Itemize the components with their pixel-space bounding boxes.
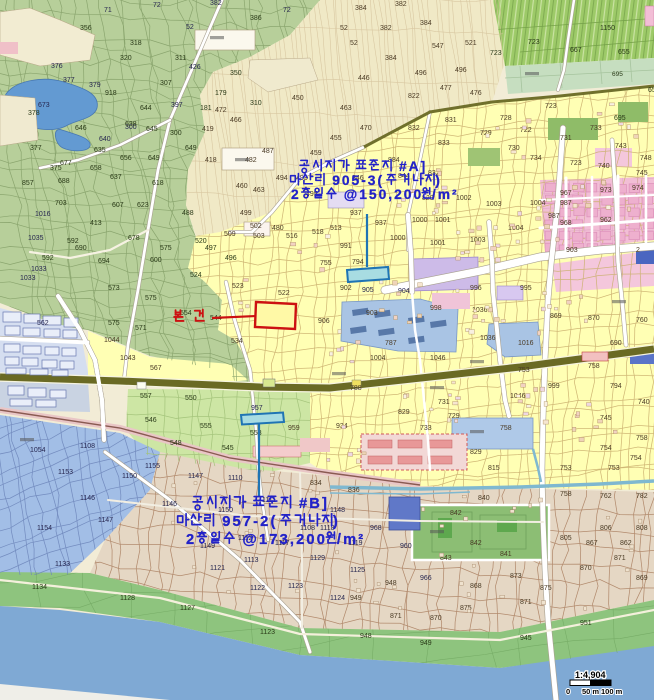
svg-text:1127: 1127 bbox=[180, 605, 195, 612]
svg-text:607: 607 bbox=[112, 202, 124, 209]
svg-text:743: 743 bbox=[615, 143, 627, 150]
svg-text:179: 179 bbox=[215, 90, 227, 97]
svg-text:496: 496 bbox=[455, 67, 467, 74]
svg-text:#A]: #A] bbox=[399, 159, 427, 174]
svg-text:1108: 1108 bbox=[300, 525, 315, 532]
svg-text:573: 573 bbox=[108, 285, 120, 292]
svg-text:949: 949 bbox=[420, 640, 432, 647]
svg-text:656: 656 bbox=[120, 155, 132, 162]
svg-text:733: 733 bbox=[420, 425, 432, 432]
svg-text:999: 999 bbox=[548, 383, 560, 390]
svg-text:307: 307 bbox=[160, 80, 172, 87]
svg-text:957-2(: 957-2( bbox=[222, 514, 277, 530]
svg-text:545: 545 bbox=[222, 445, 234, 452]
svg-text:758: 758 bbox=[588, 363, 600, 370]
svg-text:966: 966 bbox=[420, 575, 432, 582]
svg-text:548: 548 bbox=[170, 440, 182, 447]
svg-text:998: 998 bbox=[430, 305, 442, 312]
svg-text:310: 310 bbox=[250, 100, 262, 107]
svg-text:1001: 1001 bbox=[435, 217, 451, 224]
svg-text:494: 494 bbox=[276, 175, 288, 182]
svg-text:831: 831 bbox=[445, 117, 457, 124]
svg-text:967: 967 bbox=[560, 190, 572, 197]
svg-text:723: 723 bbox=[490, 50, 502, 57]
svg-text:418: 418 bbox=[205, 157, 217, 164]
svg-text:755: 755 bbox=[320, 260, 332, 267]
svg-text:/m²: /m² bbox=[337, 532, 365, 548]
svg-text:833: 833 bbox=[438, 140, 450, 147]
svg-text:@173,200: @173,200 bbox=[243, 532, 328, 548]
svg-text:734: 734 bbox=[530, 155, 542, 162]
svg-text:497: 497 bbox=[205, 245, 217, 252]
svg-text:638: 638 bbox=[125, 121, 137, 128]
svg-text:550: 550 bbox=[185, 395, 197, 402]
svg-text:311: 311 bbox=[175, 55, 186, 62]
svg-text:0: 0 bbox=[566, 687, 570, 696]
svg-text:948: 948 bbox=[360, 633, 372, 640]
svg-text:477: 477 bbox=[440, 85, 452, 92]
svg-text:52: 52 bbox=[350, 40, 358, 47]
svg-text:787: 787 bbox=[385, 340, 397, 347]
svg-text:649: 649 bbox=[148, 155, 160, 162]
svg-text:1046: 1046 bbox=[430, 355, 446, 362]
svg-text:753: 753 bbox=[608, 465, 620, 472]
svg-text:71: 71 bbox=[104, 7, 112, 14]
svg-text:72: 72 bbox=[153, 2, 161, 9]
svg-text:516: 516 bbox=[286, 233, 298, 240]
svg-text:1000: 1000 bbox=[390, 235, 406, 242]
svg-text:463: 463 bbox=[253, 187, 265, 194]
svg-text:918: 918 bbox=[105, 90, 117, 97]
svg-text:1123: 1123 bbox=[260, 629, 275, 636]
svg-text:546: 546 bbox=[145, 417, 157, 424]
svg-text:754: 754 bbox=[630, 455, 642, 462]
svg-text:592: 592 bbox=[67, 238, 79, 245]
svg-text:571: 571 bbox=[135, 325, 147, 332]
svg-text:378: 378 bbox=[28, 110, 40, 117]
svg-text:731: 731 bbox=[438, 399, 450, 406]
svg-text:906: 906 bbox=[318, 318, 330, 325]
svg-text:973: 973 bbox=[600, 187, 612, 194]
svg-text:762: 762 bbox=[600, 493, 612, 500]
svg-text:1035: 1035 bbox=[28, 235, 44, 242]
svg-text:655: 655 bbox=[618, 49, 630, 56]
svg-text:688: 688 bbox=[58, 178, 70, 185]
svg-text:1146: 1146 bbox=[162, 501, 177, 508]
svg-text:413: 413 bbox=[90, 220, 102, 227]
svg-text:1129: 1129 bbox=[310, 555, 325, 562]
svg-text:623: 623 bbox=[137, 202, 149, 209]
svg-text:397: 397 bbox=[171, 102, 183, 109]
svg-text:645: 645 bbox=[146, 126, 158, 133]
svg-text:547: 547 bbox=[432, 43, 444, 50]
svg-text:758: 758 bbox=[500, 425, 512, 432]
svg-text:470: 470 bbox=[360, 125, 372, 132]
svg-text:960: 960 bbox=[400, 543, 412, 550]
svg-text:673: 673 bbox=[38, 102, 50, 109]
svg-text:1122: 1122 bbox=[250, 585, 265, 592]
svg-text:788: 788 bbox=[350, 385, 362, 392]
svg-text:905-3(: 905-3( bbox=[332, 173, 384, 188]
svg-text:740: 740 bbox=[598, 163, 610, 170]
svg-text:1128: 1128 bbox=[120, 595, 135, 602]
svg-text:968: 968 bbox=[370, 525, 382, 532]
svg-text:829: 829 bbox=[398, 409, 410, 416]
svg-text:318: 318 bbox=[130, 40, 142, 47]
svg-text:945: 945 bbox=[520, 635, 532, 642]
svg-text:903: 903 bbox=[566, 247, 578, 254]
svg-text:): ) bbox=[435, 173, 442, 188]
svg-text:382: 382 bbox=[380, 25, 392, 32]
svg-text:384: 384 bbox=[355, 5, 367, 12]
svg-text:869: 869 bbox=[550, 313, 562, 320]
svg-text:745: 745 bbox=[636, 170, 648, 177]
svg-text:840: 840 bbox=[478, 495, 490, 502]
svg-text:873: 873 bbox=[510, 573, 522, 580]
svg-text:758: 758 bbox=[560, 491, 572, 498]
svg-text:640: 640 bbox=[99, 136, 111, 143]
svg-text:1110: 1110 bbox=[228, 475, 243, 482]
svg-text:592: 592 bbox=[42, 255, 54, 262]
svg-text:836: 836 bbox=[348, 487, 360, 494]
svg-text:782: 782 bbox=[636, 493, 648, 500]
svg-text:740: 740 bbox=[638, 399, 650, 406]
svg-text:1147: 1147 bbox=[188, 473, 203, 480]
svg-text:951: 951 bbox=[580, 620, 592, 627]
svg-text:419: 419 bbox=[202, 126, 214, 133]
svg-text:@150,200: @150,200 bbox=[344, 187, 423, 202]
svg-text:723: 723 bbox=[570, 160, 582, 167]
svg-text:384: 384 bbox=[420, 20, 432, 27]
svg-text:472: 472 bbox=[215, 107, 227, 114]
svg-text:805: 805 bbox=[560, 535, 572, 542]
svg-text:695: 695 bbox=[612, 71, 623, 78]
svg-text:868: 868 bbox=[470, 583, 482, 590]
svg-text:2: 2 bbox=[636, 247, 640, 254]
svg-text:1036: 1036 bbox=[480, 335, 496, 342]
svg-text:903: 903 bbox=[366, 310, 378, 317]
svg-text:521: 521 bbox=[465, 40, 477, 47]
svg-text:871: 871 bbox=[390, 613, 402, 620]
svg-text:834: 834 bbox=[310, 480, 322, 487]
svg-text:1033: 1033 bbox=[20, 275, 36, 282]
svg-text:2: 2 bbox=[291, 187, 301, 202]
svg-text:1121: 1121 bbox=[210, 565, 225, 572]
svg-text:1:4,904: 1:4,904 bbox=[575, 670, 606, 680]
svg-text:520: 520 bbox=[195, 238, 207, 245]
svg-text:870: 870 bbox=[430, 615, 442, 622]
svg-text:509: 509 bbox=[224, 231, 236, 238]
svg-text:463: 463 bbox=[340, 105, 352, 112]
svg-text:502: 502 bbox=[250, 223, 262, 230]
svg-text:1154: 1154 bbox=[37, 525, 52, 532]
svg-text:635: 635 bbox=[94, 147, 106, 154]
svg-text:350: 350 bbox=[230, 70, 242, 77]
svg-text:1153: 1153 bbox=[58, 469, 73, 476]
svg-text:): ) bbox=[333, 514, 340, 530]
svg-text:524: 524 bbox=[190, 272, 202, 279]
svg-text:300: 300 bbox=[170, 130, 182, 137]
svg-text:637: 637 bbox=[110, 174, 122, 181]
svg-text:962: 962 bbox=[600, 217, 612, 224]
svg-text:1133: 1133 bbox=[55, 561, 70, 568]
svg-text:857: 857 bbox=[22, 180, 34, 187]
svg-text:968: 968 bbox=[560, 220, 572, 227]
svg-text:618: 618 bbox=[152, 180, 164, 187]
svg-text:450: 450 bbox=[292, 95, 304, 102]
svg-text:690: 690 bbox=[75, 245, 87, 252]
svg-text:644: 644 bbox=[140, 105, 152, 112]
svg-text:2: 2 bbox=[186, 532, 196, 548]
svg-text:382: 382 bbox=[395, 1, 407, 8]
svg-text:703: 703 bbox=[55, 200, 67, 207]
svg-text:871: 871 bbox=[614, 555, 626, 562]
svg-text:1125: 1125 bbox=[350, 567, 365, 574]
svg-text:760: 760 bbox=[636, 317, 648, 324]
svg-text:379: 379 bbox=[89, 82, 101, 89]
svg-text:832: 832 bbox=[408, 125, 420, 132]
svg-text:1004: 1004 bbox=[370, 355, 386, 362]
svg-text:695: 695 bbox=[614, 115, 626, 122]
svg-text:384: 384 bbox=[385, 55, 397, 62]
svg-text:995: 995 bbox=[520, 285, 532, 292]
svg-text:1054: 1054 bbox=[30, 447, 46, 454]
svg-text:50 m: 50 m bbox=[582, 687, 599, 696]
svg-text:902: 902 bbox=[340, 285, 352, 292]
svg-text:808: 808 bbox=[636, 525, 648, 532]
svg-text:487: 487 bbox=[262, 148, 274, 155]
svg-text:/m²: /m² bbox=[432, 187, 459, 202]
svg-text:841: 841 bbox=[500, 551, 512, 558]
svg-text:1155: 1155 bbox=[145, 463, 160, 470]
svg-text:974: 974 bbox=[632, 185, 644, 192]
svg-text:753: 753 bbox=[518, 367, 530, 374]
svg-text:1000: 1000 bbox=[412, 217, 428, 224]
svg-text:1043: 1043 bbox=[120, 355, 136, 362]
svg-text:1016: 1016 bbox=[518, 340, 534, 347]
svg-text:996: 996 bbox=[470, 285, 482, 292]
svg-text:496: 496 bbox=[225, 255, 237, 262]
svg-text:959: 959 bbox=[288, 425, 300, 432]
svg-text:1149: 1149 bbox=[200, 543, 215, 550]
svg-text:72: 72 bbox=[283, 7, 291, 14]
svg-text:937: 937 bbox=[350, 210, 362, 217]
svg-text:1016: 1016 bbox=[35, 211, 51, 218]
svg-text:567: 567 bbox=[150, 365, 162, 372]
svg-text:806: 806 bbox=[600, 525, 612, 532]
svg-text:987: 987 bbox=[560, 200, 572, 207]
svg-text:871: 871 bbox=[520, 599, 532, 606]
svg-text:488: 488 bbox=[182, 210, 194, 217]
svg-text:957: 957 bbox=[251, 405, 263, 412]
svg-text:562: 562 bbox=[37, 320, 49, 327]
svg-text:1124: 1124 bbox=[330, 595, 345, 602]
svg-text:655: 655 bbox=[648, 87, 654, 94]
svg-text:870: 870 bbox=[580, 565, 592, 572]
svg-text:842: 842 bbox=[470, 540, 482, 547]
svg-text:1044: 1044 bbox=[104, 337, 120, 344]
svg-text:1148: 1148 bbox=[330, 507, 345, 514]
svg-text:377: 377 bbox=[63, 77, 75, 84]
svg-text:875: 875 bbox=[540, 585, 552, 592]
svg-text:1146: 1146 bbox=[80, 495, 95, 502]
svg-text:426: 426 bbox=[189, 64, 201, 71]
svg-text:723: 723 bbox=[528, 39, 540, 46]
svg-text:455: 455 bbox=[330, 135, 342, 142]
svg-text:52: 52 bbox=[186, 24, 194, 31]
svg-text:575: 575 bbox=[108, 320, 120, 327]
svg-text:870: 870 bbox=[588, 315, 600, 322]
svg-text:#B]: #B] bbox=[299, 496, 329, 512]
svg-text:575: 575 bbox=[145, 295, 157, 302]
svg-text:1001: 1001 bbox=[430, 240, 446, 247]
svg-text:503: 503 bbox=[253, 233, 265, 240]
svg-text:733: 733 bbox=[590, 125, 602, 132]
svg-text:1033: 1033 bbox=[31, 266, 47, 273]
svg-text:518: 518 bbox=[312, 229, 324, 236]
svg-text:753: 753 bbox=[560, 465, 572, 472]
svg-text:600: 600 bbox=[150, 257, 162, 264]
svg-text:496: 496 bbox=[415, 70, 427, 77]
svg-text:1134: 1134 bbox=[32, 584, 47, 591]
svg-text:513: 513 bbox=[330, 225, 342, 232]
svg-text:937: 937 bbox=[375, 220, 387, 227]
svg-text:905: 905 bbox=[362, 287, 374, 294]
svg-text:382: 382 bbox=[210, 0, 222, 7]
svg-text:320: 320 bbox=[120, 55, 132, 62]
svg-text:377: 377 bbox=[30, 145, 42, 152]
svg-text:52: 52 bbox=[340, 25, 348, 32]
svg-text:554: 554 bbox=[180, 310, 192, 317]
svg-text:678: 678 bbox=[128, 235, 140, 242]
svg-text:181: 181 bbox=[200, 105, 212, 112]
svg-text:667: 667 bbox=[570, 47, 582, 54]
svg-text:466: 466 bbox=[230, 117, 242, 124]
svg-text:499: 499 bbox=[240, 210, 252, 217]
svg-text:867: 867 bbox=[586, 540, 598, 547]
svg-text:815: 815 bbox=[488, 465, 500, 472]
svg-text:822: 822 bbox=[408, 93, 420, 100]
svg-text:658: 658 bbox=[90, 165, 102, 172]
svg-text:575: 575 bbox=[160, 245, 172, 252]
svg-text:758: 758 bbox=[636, 435, 648, 442]
svg-text:1150: 1150 bbox=[122, 473, 137, 480]
svg-text:386: 386 bbox=[250, 15, 262, 22]
svg-text:555: 555 bbox=[200, 423, 212, 430]
svg-text:694: 694 bbox=[98, 258, 110, 265]
svg-text:677: 677 bbox=[60, 160, 72, 167]
svg-text:446: 446 bbox=[358, 75, 370, 82]
svg-text:459: 459 bbox=[310, 150, 322, 157]
svg-text:534: 534 bbox=[231, 338, 243, 345]
svg-text:949: 949 bbox=[350, 595, 362, 602]
svg-text:1108: 1108 bbox=[80, 443, 95, 450]
svg-text:480: 480 bbox=[272, 225, 284, 232]
svg-text:100 m: 100 m bbox=[601, 687, 623, 696]
svg-text:991: 991 bbox=[340, 243, 352, 250]
svg-text:356: 356 bbox=[80, 25, 92, 32]
svg-text:794: 794 bbox=[352, 259, 364, 266]
svg-text:731: 731 bbox=[560, 135, 572, 142]
svg-text:1150: 1150 bbox=[600, 25, 615, 32]
svg-text:557: 557 bbox=[140, 393, 152, 400]
svg-text:723: 723 bbox=[545, 103, 557, 110]
svg-text:829: 829 bbox=[470, 449, 482, 456]
svg-text:754: 754 bbox=[600, 445, 612, 452]
svg-text:794: 794 bbox=[610, 383, 622, 390]
svg-text:748: 748 bbox=[640, 155, 652, 162]
svg-text:376: 376 bbox=[51, 63, 63, 70]
svg-text:728: 728 bbox=[500, 115, 512, 122]
svg-text:460: 460 bbox=[236, 183, 248, 190]
svg-text:476: 476 bbox=[470, 90, 482, 97]
svg-text:869: 869 bbox=[636, 575, 648, 582]
svg-text:1003: 1003 bbox=[486, 201, 502, 208]
svg-text:842: 842 bbox=[450, 510, 462, 517]
svg-text:1147: 1147 bbox=[98, 517, 113, 524]
svg-text:649: 649 bbox=[185, 145, 197, 152]
svg-text:987: 987 bbox=[548, 213, 560, 220]
svg-text:1113: 1113 bbox=[244, 557, 259, 564]
svg-text:690: 690 bbox=[610, 340, 622, 347]
svg-text:522: 522 bbox=[278, 290, 290, 297]
svg-text:523: 523 bbox=[232, 283, 244, 290]
svg-text:1150: 1150 bbox=[218, 507, 233, 514]
svg-text:646: 646 bbox=[75, 125, 87, 132]
svg-text:375: 375 bbox=[50, 165, 62, 172]
